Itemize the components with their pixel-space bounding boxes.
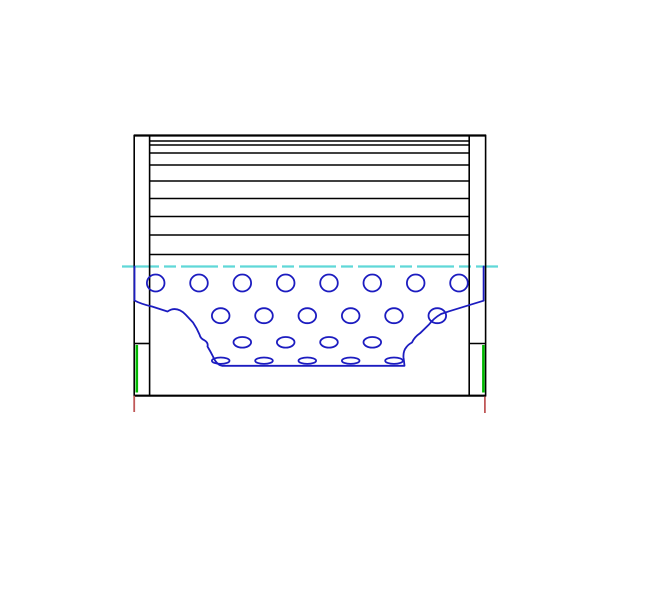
perforation-hole [407, 275, 425, 292]
perforation-hole [385, 308, 403, 323]
perforation-hole [299, 358, 317, 364]
perforation-hole [255, 308, 273, 323]
perforation-hole [190, 275, 208, 292]
perforation-hole [255, 358, 273, 364]
perforation-hole [234, 275, 252, 292]
perforation-hole [450, 275, 468, 292]
perforation-hole [342, 358, 360, 364]
perforation-hole [364, 275, 382, 292]
perforation-hole [212, 308, 230, 323]
perforation-hole [320, 275, 338, 292]
cutaway-outline [135, 267, 484, 366]
perforation-hole [299, 308, 317, 323]
perforation-hole [342, 308, 360, 323]
perforation-hole [277, 337, 295, 348]
drawing-canvas [0, 0, 668, 616]
perforation-hole [385, 358, 403, 364]
perforation-hole [277, 275, 295, 292]
perforation-hole [234, 337, 252, 348]
perforation-hole [320, 337, 338, 348]
filter-element-drawing [0, 0, 668, 616]
perforation-hole [364, 337, 382, 348]
page: { "drawing": { "name": "pleated-filter-e… [0, 0, 668, 616]
